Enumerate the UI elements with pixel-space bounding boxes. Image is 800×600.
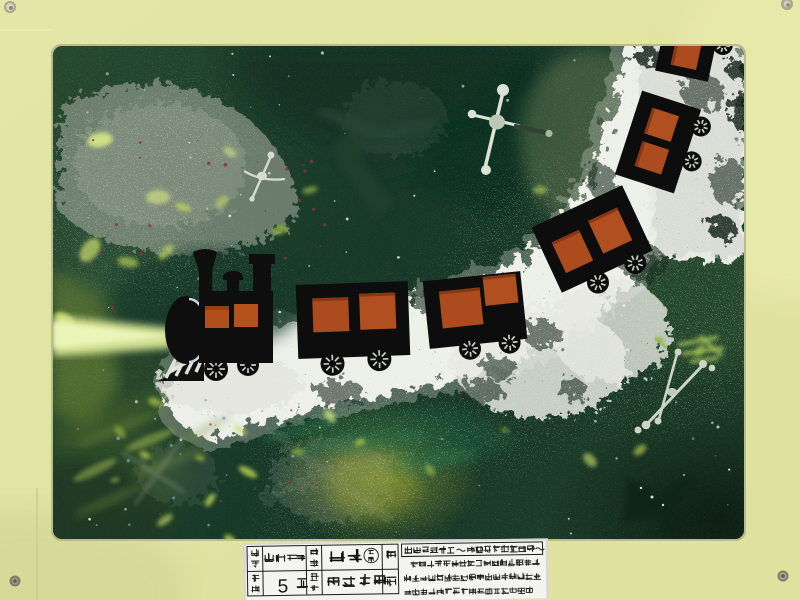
svg-text:5: 5	[277, 576, 288, 597]
